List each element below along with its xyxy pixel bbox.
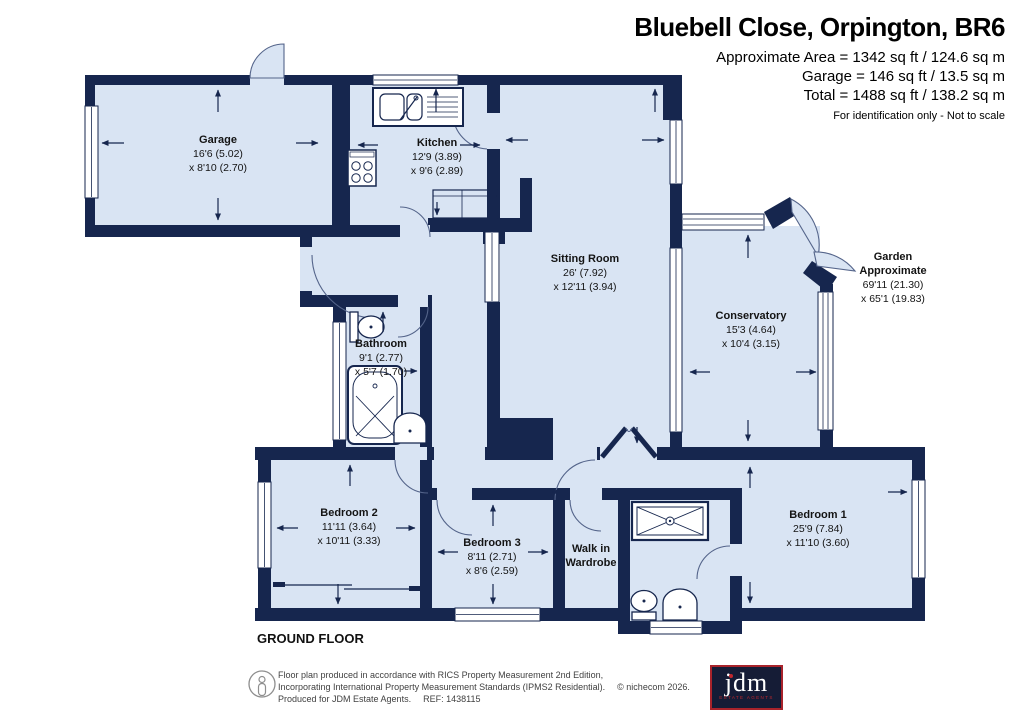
total-area: Total = 1488 sq ft / 138.2 sq m bbox=[634, 86, 1005, 105]
footer-line3: Produced for JDM Estate Agents.REF: 1438… bbox=[278, 693, 690, 705]
person-scale-icon bbox=[246, 668, 278, 706]
jdm-logo-dot bbox=[729, 674, 733, 678]
footer-disclaimer: Floor plan produced in accordance with R… bbox=[278, 669, 690, 705]
room-label-walk-in-wardrobe: Walk in Wardrobe bbox=[566, 542, 617, 570]
room-label-bedroom2: Bedroom 2 11'11 (3.64) x 10'11 (3.33) bbox=[317, 506, 380, 548]
jdm-logo-text: jdm bbox=[712, 668, 781, 697]
room-label-bedroom3: Bedroom 3 8'11 (2.71) x 8'6 (2.59) bbox=[463, 536, 520, 578]
ensuite-basin-icon bbox=[663, 589, 697, 620]
room-label-sitting-room: Sitting Room 26' (7.92) x 12'11 (3.94) bbox=[551, 252, 619, 294]
basin-icon bbox=[394, 413, 426, 443]
reference-number: REF: 1438115 bbox=[423, 693, 480, 705]
sink-icon bbox=[373, 88, 463, 126]
jdm-logo-subtext: ESTATE AGENTS bbox=[712, 695, 781, 700]
room-label-bathroom: Bathroom 9'1 (2.77) x 5'7 (1.70) bbox=[355, 337, 407, 379]
footer-line2: Incorporating International Property Mea… bbox=[278, 681, 690, 693]
identification-note: For identification only - Not to scale bbox=[634, 110, 1005, 122]
area-summary: Approximate Area = 1342 sq ft / 124.6 sq… bbox=[634, 48, 1005, 105]
room-label-conservatory: Conservatory 15'3 (4.64) x 10'4 (3.15) bbox=[716, 309, 787, 351]
hob-icon bbox=[348, 150, 376, 186]
page-title: Bluebell Close, Orpington, BR6 bbox=[634, 12, 1005, 42]
header: Bluebell Close, Orpington, BR6 Approxima… bbox=[634, 12, 1005, 122]
garage-area: Garage = 146 sq ft / 13.5 sq m bbox=[634, 67, 1005, 86]
room-label-garage: Garage 16'6 (5.02) x 8'10 (2.70) bbox=[189, 133, 247, 175]
garden-label: Garden Approximate 69'11 (21.30) x 65'1 … bbox=[859, 250, 926, 306]
front-door-arc bbox=[250, 44, 284, 78]
ensuite-toilet-icon bbox=[631, 591, 657, 621]
approximate-area: Approximate Area = 1342 sq ft / 124.6 sq… bbox=[634, 48, 1005, 67]
room-label-kitchen: Kitchen 12'9 (3.89) x 9'6 (2.89) bbox=[411, 136, 463, 178]
footer-line1: Floor plan produced in accordance with R… bbox=[278, 669, 690, 681]
shower-icon bbox=[632, 502, 708, 540]
copyright-text: © nichecom 2026. bbox=[617, 681, 690, 693]
floor-label: GROUND FLOOR bbox=[257, 631, 364, 646]
room-label-bedroom1: Bedroom 1 25'9 (7.84) x 11'10 (3.60) bbox=[786, 508, 849, 550]
jdm-logo: jdm ESTATE AGENTS bbox=[710, 665, 783, 710]
floorplan-page: Bluebell Close, Orpington, BR6 Approxima… bbox=[0, 0, 1020, 721]
